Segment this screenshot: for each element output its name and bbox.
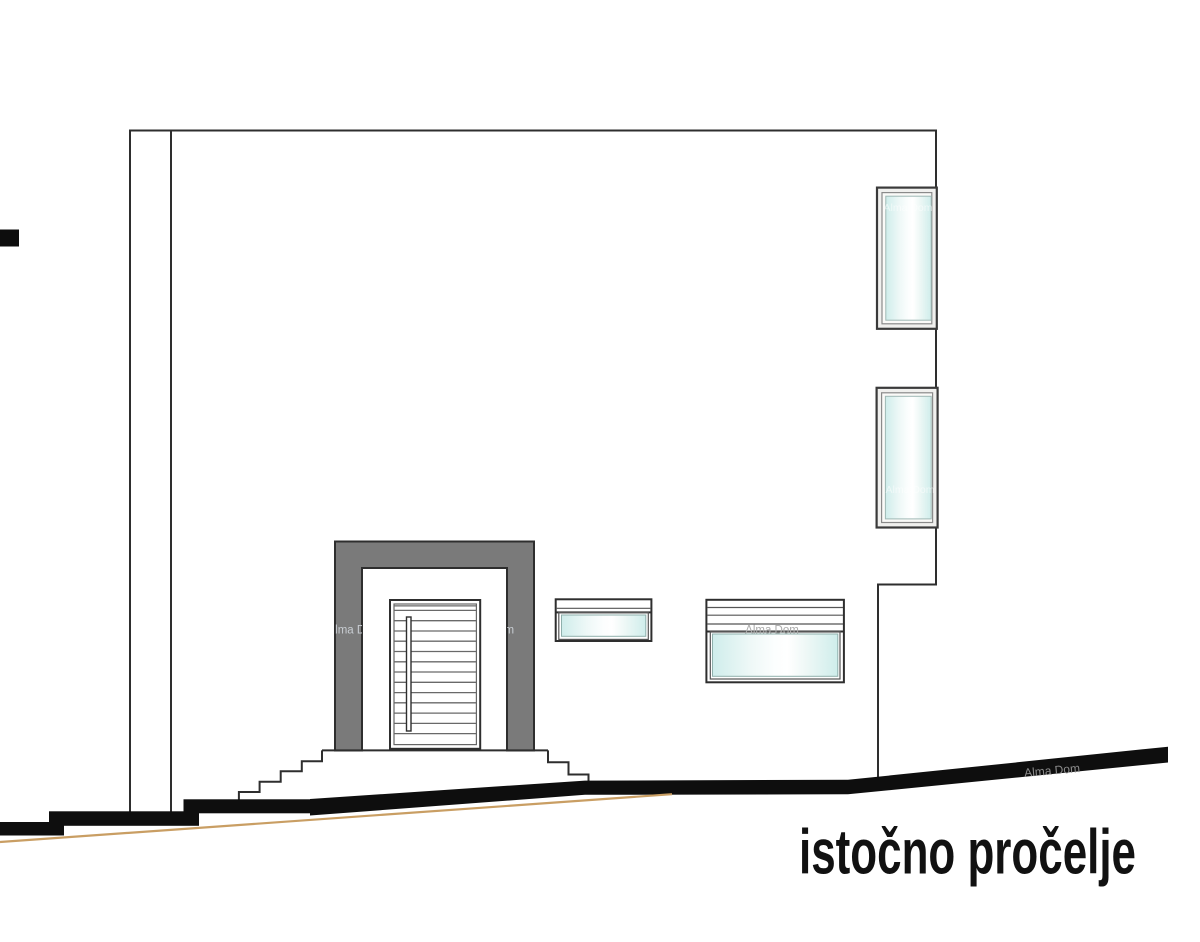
svg-text:Alma Dom: Alma Dom xyxy=(745,625,799,637)
svg-text:Alma Dom: Alma Dom xyxy=(885,484,934,496)
svg-text:istočno pročelje: istočno pročelje xyxy=(799,818,1136,888)
svg-text:Alma Dom: Alma Dom xyxy=(883,202,932,214)
